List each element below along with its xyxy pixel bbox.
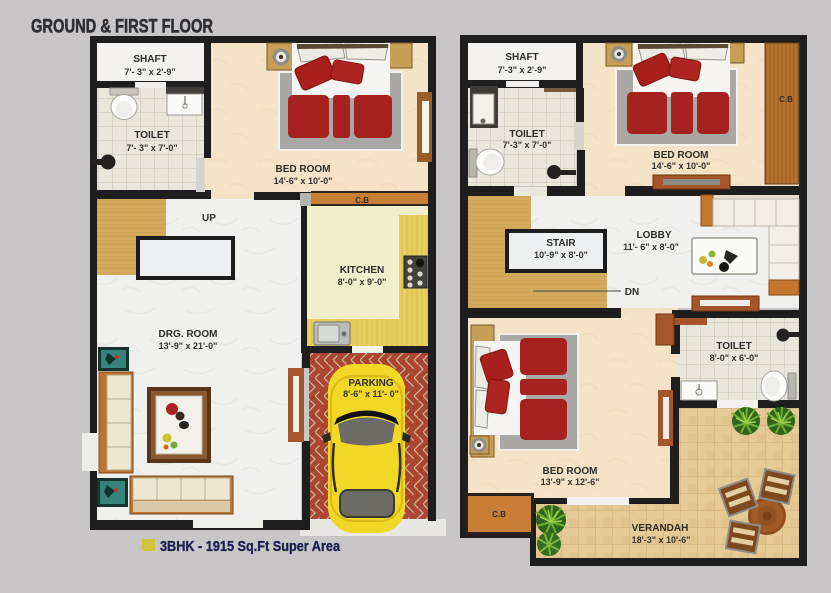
svg-text:7'- 3" x 7'-0": 7'- 3" x 7'-0" (126, 143, 177, 153)
svg-text:14'-6" x 10'-0": 14'-6" x 10'-0" (274, 176, 333, 186)
svg-text:VERANDAH: VERANDAH (632, 523, 689, 534)
svg-text:TOILET: TOILET (509, 129, 544, 140)
svg-text:SHAFT: SHAFT (133, 54, 166, 65)
svg-text:TOILET: TOILET (134, 130, 169, 141)
svg-text:BED ROOM: BED ROOM (654, 150, 709, 161)
svg-text:TOILET: TOILET (716, 341, 751, 352)
svg-text:KITCHEN: KITCHEN (340, 265, 384, 276)
svg-text:C.B: C.B (492, 510, 506, 519)
svg-text:STAIR: STAIR (546, 238, 576, 249)
svg-text:DRG. ROOM: DRG. ROOM (159, 329, 218, 340)
svg-text:8'-6" x 11'- 0": 8'-6" x 11'- 0" (343, 389, 399, 399)
svg-text:UP: UP (202, 213, 216, 224)
svg-text:7'- 3" x 2'-9": 7'- 3" x 2'-9" (124, 67, 175, 77)
svg-text:C.B: C.B (355, 196, 369, 205)
svg-text:GROUND & FIRST FLOOR: GROUND & FIRST FLOOR (31, 17, 213, 38)
svg-text:13'-9" x 12'-6": 13'-9" x 12'-6" (541, 477, 600, 487)
svg-text:BED ROOM: BED ROOM (276, 164, 331, 175)
svg-text:BED ROOM: BED ROOM (543, 466, 598, 477)
svg-text:DN: DN (625, 287, 639, 298)
svg-text:14'-6" x 10'-0": 14'-6" x 10'-0" (652, 161, 711, 171)
svg-text:18'-3" x 10'-6": 18'-3" x 10'-6" (632, 535, 691, 545)
svg-text:LOBBY: LOBBY (637, 230, 672, 241)
svg-text:7'-3" x 7'-0": 7'-3" x 7'-0" (503, 140, 552, 150)
svg-text:8'-0" x 9'-0": 8'-0" x 9'-0" (338, 277, 387, 287)
svg-text:11'- 6" x 8'-0": 11'- 6" x 8'-0" (623, 242, 679, 252)
svg-text:13'-9" x 21'-0": 13'-9" x 21'-0" (159, 341, 218, 351)
svg-text:10'-9" x 8'-0": 10'-9" x 8'-0" (534, 250, 588, 260)
svg-text:8'-0" x 6'-0": 8'-0" x 6'-0" (710, 353, 759, 363)
svg-text:PARKING: PARKING (348, 378, 394, 389)
svg-text:3BHK - 1915 Sq.Ft Super Area: 3BHK - 1915 Sq.Ft Super Area (160, 539, 341, 555)
svg-text:7'-3" x 2'-9": 7'-3" x 2'-9" (498, 65, 547, 75)
svg-text:SHAFT: SHAFT (505, 52, 538, 63)
svg-text:C.B: C.B (779, 95, 793, 104)
